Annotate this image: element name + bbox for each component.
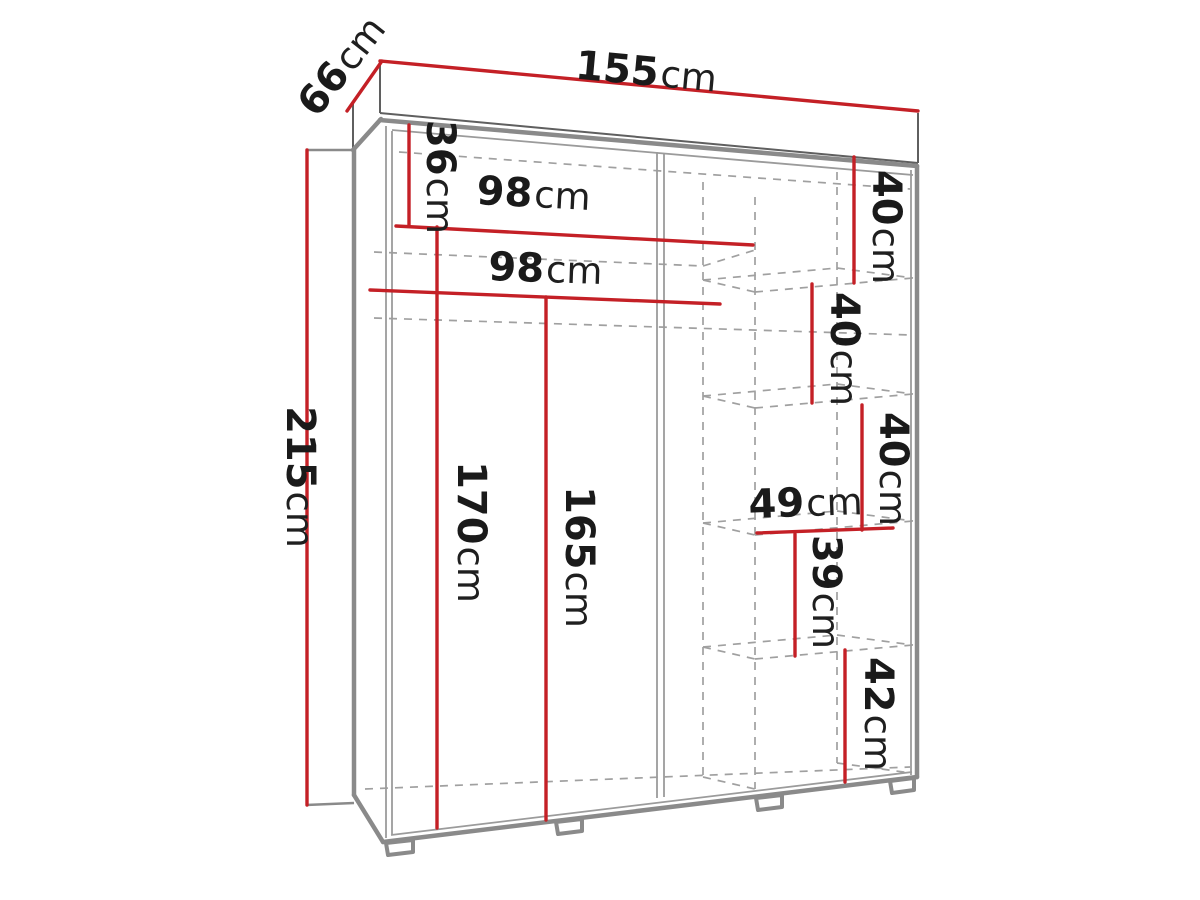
cabinet-top-bevel [353, 119, 381, 150]
dim-shelf-gap-2-label: 40cm [821, 292, 867, 406]
dim-inner-width-lower-label: 98cm [488, 244, 604, 294]
foot-4 [890, 778, 914, 793]
interior-floor-edge [365, 763, 911, 789]
hidden-edges [365, 152, 913, 789]
cabinet-bottom-bevel [354, 795, 383, 842]
dim-inner-width-upper-label: 98cm [476, 168, 592, 220]
dimension-labels: 155cm 66cm 215cm 36cm 98cm 98cm 170cm 16… [277, 7, 916, 771]
height-tick-bottom [306, 803, 354, 805]
cabinet-bottom-edge [383, 777, 917, 842]
dim-hanging-right-label: 165cm [556, 486, 602, 628]
dim-width-label: 155cm [573, 43, 719, 102]
shelf-2 [703, 384, 913, 408]
dim-shelf-gap-5-label: 42cm [855, 657, 901, 771]
dim-shelf-width-label: 49cm [748, 478, 864, 528]
wardrobe-diagram-canvas: 155cm 66cm 215cm 36cm 98cm 98cm 170cm 16… [0, 0, 1200, 900]
foot-1 [386, 840, 413, 855]
dim-top-shelf-drop-label: 36cm [417, 120, 463, 234]
dim-shelf-gap-4-label: 39cm [803, 535, 849, 649]
dim-shelf-gap-1-label: 40cm [863, 170, 909, 284]
dim-shelf-gap-3-label: 40cm [870, 412, 916, 526]
foot-2 [556, 819, 582, 834]
dimension-lines [307, 61, 918, 828]
foot-3 [756, 795, 782, 810]
cabinet-top-inner-line [392, 130, 913, 175]
cabinet-bottom-inner-line [391, 772, 912, 835]
dim-shelf-width-line [757, 528, 893, 533]
dim-hanging-left-label: 170cm [448, 461, 494, 603]
wardrobe-diagram: 155cm 66cm 215cm 36cm 98cm 98cm 170cm 16… [0, 0, 1200, 900]
dim-height-label: 215cm [277, 406, 323, 548]
wardrobe-outline [306, 63, 918, 855]
